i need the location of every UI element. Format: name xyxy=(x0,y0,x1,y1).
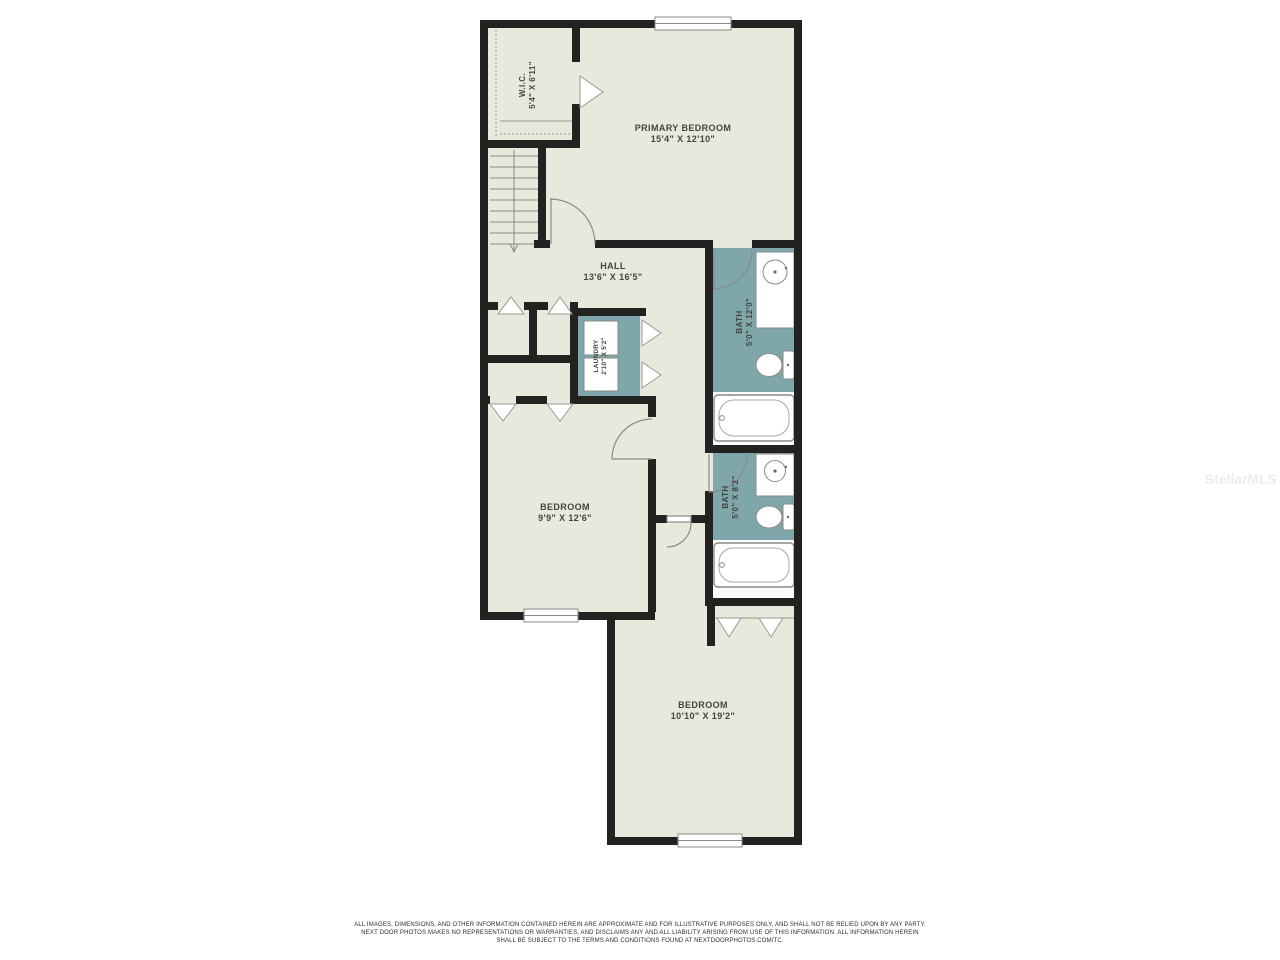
room-label-bath-upper: BATH 5'0" X 12'0" xyxy=(735,298,755,346)
floor-plan-image: PRIMARY BEDROOM 15'4" X 12'10" W.I.C. 5'… xyxy=(0,0,1280,960)
disclaimer-text: ALL IMAGES, DIMENSIONS, AND OTHER INFORM… xyxy=(0,922,1280,945)
disclaimer-line: ALL IMAGES, DIMENSIONS, AND OTHER INFORM… xyxy=(0,922,1280,930)
window-icon xyxy=(524,609,578,622)
window-icon xyxy=(655,17,731,30)
room-name: BEDROOM xyxy=(538,502,592,513)
room-name: PRIMARY BEDROOM xyxy=(635,123,732,134)
window-icon xyxy=(678,834,742,847)
room-label-primary-bedroom: PRIMARY BEDROOM 15'4" X 12'10" xyxy=(635,123,732,145)
vanity-sink-icon xyxy=(756,252,794,328)
room-dims: 13'6" X 16'5" xyxy=(583,272,642,283)
bathtub-icon xyxy=(714,543,794,587)
disclaimer-line: NEXT DOOR PHOTOS MAKES NO REPRESENTATION… xyxy=(0,930,1280,938)
room-dims: 5'0" X 8'2" xyxy=(731,475,741,518)
toilet-icon xyxy=(756,351,794,379)
room-name: LAUNDRY xyxy=(593,337,601,375)
room-label-bedroom-mid: BEDROOM 9'9" X 12'6" xyxy=(538,502,592,524)
room-dims: 15'4" X 12'10" xyxy=(635,134,732,145)
bathtub-icon xyxy=(714,395,794,441)
disclaimer-line: SHALL BE SUBJECT TO THE TERMS AND CONDIT… xyxy=(0,938,1280,946)
room-name: W.I.C. xyxy=(518,61,528,109)
mls-watermark: StellarMLS xyxy=(1205,472,1277,487)
room-label-laundry: LAUNDRY 2'10" X 5'2" xyxy=(593,337,609,375)
room-dims: 10'10" X 19'2" xyxy=(671,711,735,722)
room-name: BEDROOM xyxy=(671,700,735,711)
room-label-hall: HALL 13'6" X 16'5" xyxy=(583,261,642,283)
room-dims: 2'10" X 5'2" xyxy=(601,337,609,375)
room-name: HALL xyxy=(583,261,642,272)
room-name: BATH xyxy=(721,475,731,518)
room-dims: 5'0" X 12'0" xyxy=(745,298,755,346)
room-label-bath-lower: BATH 5'0" X 8'2" xyxy=(721,475,741,518)
room-label-bedroom-lower: BEDROOM 10'10" X 19'2" xyxy=(671,700,735,722)
room-dims: 9'9" X 12'6" xyxy=(538,513,592,524)
vanity-sink-icon xyxy=(756,454,794,496)
toilet-icon xyxy=(756,504,794,530)
room-label-wic: W.I.C. 5'4" X 6'11" xyxy=(518,61,538,109)
room-name: BATH xyxy=(735,298,745,346)
room-dims: 5'4" X 6'11" xyxy=(528,61,538,109)
